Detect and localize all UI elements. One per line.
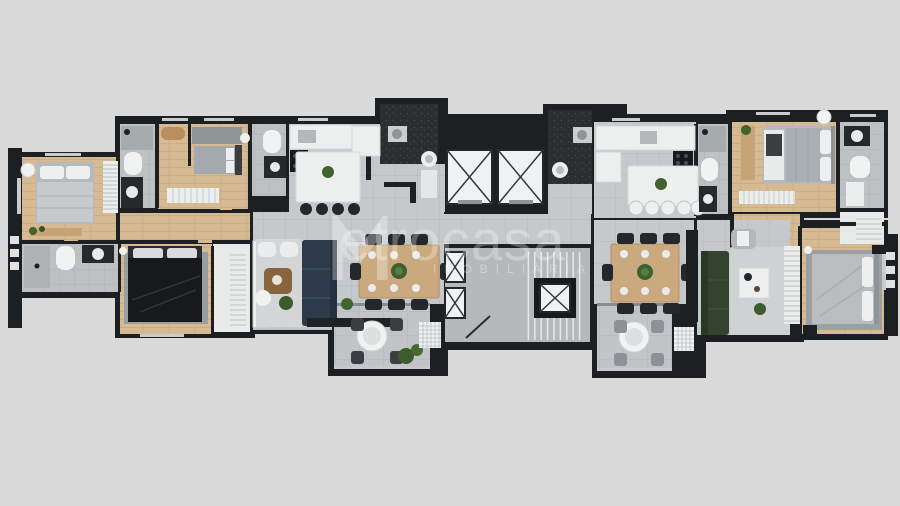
table-item bbox=[754, 286, 760, 292]
pillow bbox=[862, 291, 873, 321]
core-hallway-floor bbox=[444, 214, 591, 244]
pillow bbox=[862, 257, 873, 287]
elevator-door bbox=[458, 200, 482, 204]
plate bbox=[641, 287, 649, 295]
interior-wall bbox=[188, 124, 191, 166]
bench-wood bbox=[30, 228, 82, 236]
shower-head bbox=[702, 129, 708, 135]
sofa-back bbox=[701, 251, 708, 335]
ledge-vent bbox=[886, 280, 895, 288]
balcony-chair bbox=[390, 318, 403, 331]
balcony-table-ring bbox=[363, 327, 381, 345]
shower-head bbox=[124, 129, 130, 135]
laundry-sink-bowl bbox=[556, 166, 564, 174]
tray bbox=[272, 275, 282, 285]
pillow bbox=[133, 248, 163, 259]
nightstand bbox=[803, 325, 817, 334]
toilet bbox=[124, 152, 142, 175]
chair bbox=[388, 299, 405, 310]
ledge-vent bbox=[10, 236, 19, 244]
window bbox=[756, 112, 790, 115]
plate bbox=[412, 284, 420, 292]
toilet bbox=[850, 156, 870, 178]
pillow bbox=[66, 166, 90, 179]
pouf bbox=[255, 290, 271, 306]
chair bbox=[663, 303, 680, 314]
stool bbox=[300, 203, 312, 215]
plate bbox=[662, 250, 670, 258]
kitchen-sink bbox=[640, 131, 657, 144]
interior-wall bbox=[836, 122, 840, 212]
chair bbox=[388, 234, 405, 245]
ledge-vent bbox=[10, 262, 19, 270]
balcony-chair bbox=[351, 351, 364, 364]
stool bbox=[645, 201, 659, 215]
bedR3-headboard bbox=[831, 126, 835, 184]
plate bbox=[620, 287, 628, 295]
chair bbox=[411, 234, 428, 245]
chair bbox=[365, 299, 382, 310]
armchair bbox=[280, 242, 298, 257]
plate bbox=[620, 250, 628, 258]
shower-drain bbox=[35, 264, 40, 269]
burner bbox=[684, 154, 688, 158]
plate bbox=[368, 251, 376, 259]
interior-wall bbox=[155, 124, 159, 208]
bed3-dark bbox=[128, 258, 202, 322]
bedR3-duvet bbox=[786, 128, 822, 182]
interior-wall bbox=[212, 240, 252, 244]
chair bbox=[617, 303, 634, 314]
chair bbox=[640, 233, 657, 244]
ledge-vent bbox=[10, 249, 19, 257]
chair bbox=[365, 234, 382, 245]
centerpiece-plant bbox=[641, 268, 649, 276]
interior-wall bbox=[410, 187, 416, 203]
bed2-rug bbox=[192, 127, 242, 144]
armchair bbox=[258, 242, 276, 257]
bath-cabinet bbox=[846, 182, 864, 206]
stool bbox=[661, 201, 675, 215]
window bbox=[17, 178, 21, 214]
balcony-rail bbox=[597, 368, 672, 371]
fridge bbox=[596, 152, 621, 182]
nightstand bbox=[872, 245, 884, 254]
burner bbox=[676, 161, 680, 165]
entry-console bbox=[161, 127, 185, 140]
interior-wall bbox=[286, 124, 289, 196]
toilet bbox=[56, 246, 75, 270]
glass-partition bbox=[597, 303, 672, 306]
balcony-chair bbox=[614, 353, 627, 366]
balcony-chair bbox=[651, 353, 664, 366]
floor-lamp bbox=[21, 163, 35, 177]
window bbox=[850, 114, 876, 117]
stool bbox=[316, 203, 328, 215]
burner bbox=[684, 161, 688, 165]
interior-wall bbox=[158, 209, 220, 213]
interior-wall bbox=[118, 240, 198, 244]
island-plant bbox=[655, 178, 667, 190]
burner bbox=[676, 154, 680, 158]
window bbox=[45, 153, 81, 156]
interior-wall bbox=[838, 208, 886, 212]
stool bbox=[677, 201, 691, 215]
chair bbox=[663, 233, 680, 244]
toilet bbox=[701, 158, 718, 181]
elevator-door bbox=[509, 200, 533, 204]
chair bbox=[350, 263, 361, 280]
lamp bbox=[240, 133, 250, 143]
service-hall-right bbox=[548, 184, 592, 214]
plant bbox=[741, 125, 751, 135]
chair bbox=[617, 233, 634, 244]
bedR3-pad bbox=[766, 134, 782, 156]
plate bbox=[390, 251, 398, 259]
balcony-rail bbox=[334, 366, 430, 369]
laundry-sink-bowl bbox=[425, 155, 433, 163]
island-plant bbox=[322, 166, 334, 178]
plant bbox=[39, 226, 45, 232]
toilet bbox=[263, 130, 281, 153]
sink bbox=[126, 186, 138, 198]
stool bbox=[332, 203, 344, 215]
master-headboard bbox=[874, 254, 879, 324]
balcony-table-ring bbox=[625, 328, 643, 346]
interior-wall bbox=[22, 240, 64, 244]
plate bbox=[662, 287, 670, 295]
interior-wall bbox=[384, 182, 416, 187]
stool bbox=[348, 203, 360, 215]
pillow bbox=[226, 148, 234, 160]
chair bbox=[640, 303, 657, 314]
plant bbox=[29, 227, 37, 235]
interior-wall bbox=[78, 240, 118, 244]
kitchen-sink bbox=[298, 130, 316, 143]
sink bbox=[851, 130, 863, 142]
pillow bbox=[820, 130, 831, 154]
laundry-door bbox=[421, 170, 437, 198]
pillow bbox=[167, 248, 197, 259]
window bbox=[204, 118, 234, 121]
balcony-chair bbox=[651, 320, 664, 333]
window bbox=[882, 254, 886, 290]
floor-plan-svg bbox=[0, 0, 900, 506]
pillow bbox=[226, 161, 234, 173]
plate bbox=[641, 250, 649, 258]
window bbox=[140, 334, 184, 337]
plate bbox=[390, 284, 398, 292]
washer-drum bbox=[577, 130, 587, 140]
balcony-chair bbox=[351, 318, 364, 331]
balcony-chair bbox=[614, 320, 627, 333]
bed2-headboard bbox=[235, 145, 242, 175]
closet-shelf-slats bbox=[856, 214, 882, 242]
window bbox=[612, 118, 640, 121]
chair bbox=[602, 264, 613, 281]
floor-plan-render: etrocasa IMOBILIÁRIA bbox=[0, 0, 900, 506]
plant bbox=[279, 296, 293, 310]
wardrobe-slats bbox=[784, 246, 800, 324]
pillow bbox=[820, 157, 831, 181]
interior-wall bbox=[728, 124, 732, 214]
plate bbox=[368, 284, 376, 292]
ledge-vent bbox=[886, 266, 895, 274]
washer-drum bbox=[392, 129, 402, 139]
sink bbox=[703, 194, 713, 204]
sink bbox=[92, 248, 104, 260]
window bbox=[162, 118, 188, 121]
pillow bbox=[40, 166, 64, 179]
interior-wall bbox=[232, 209, 252, 213]
centerpiece-plant bbox=[395, 267, 403, 275]
sofa-back bbox=[330, 240, 337, 326]
window bbox=[298, 118, 328, 121]
ledge-vent bbox=[886, 252, 895, 260]
closet-slats bbox=[230, 250, 246, 328]
plant bbox=[754, 303, 766, 315]
throw-blanket bbox=[737, 231, 749, 246]
bed-suite1-duvet bbox=[37, 182, 93, 222]
lamp-table bbox=[817, 110, 831, 124]
sink bbox=[270, 162, 280, 172]
interior-wall bbox=[211, 246, 214, 334]
plate bbox=[412, 251, 420, 259]
stool bbox=[629, 201, 643, 215]
coffee-table-marble bbox=[739, 268, 769, 298]
lamp bbox=[119, 247, 127, 255]
dresser-slats bbox=[167, 188, 219, 203]
chair bbox=[411, 299, 428, 310]
bench-slats bbox=[739, 191, 795, 204]
tv-wall bbox=[686, 230, 698, 322]
corridor-left-floor bbox=[120, 213, 250, 243]
table-item bbox=[744, 273, 752, 281]
lamp bbox=[804, 246, 812, 254]
plant bbox=[341, 298, 353, 310]
